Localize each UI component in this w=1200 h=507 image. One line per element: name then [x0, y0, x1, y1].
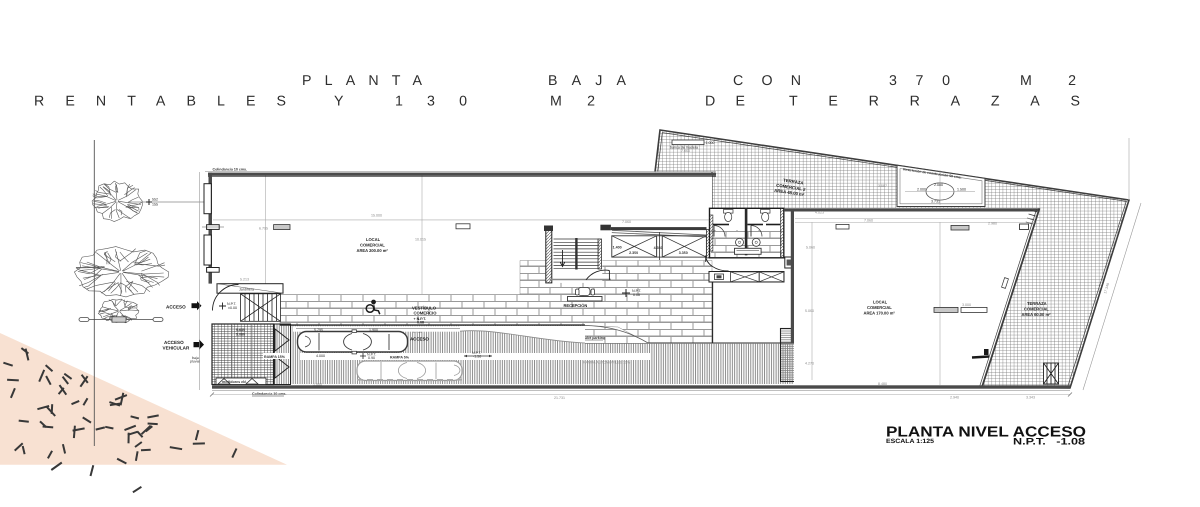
svg-text:5.213: 5.213: [240, 278, 249, 282]
svg-text:AREA 170.00 m²: AREA 170.00 m²: [864, 310, 896, 315]
svg-text:ACCESO: ACCESO: [166, 305, 186, 310]
svg-text:1.000: 1.000: [706, 141, 715, 145]
svg-text:-1.50: -1.50: [473, 354, 481, 358]
svg-text:AREA 200.00 m²: AREA 200.00 m²: [357, 248, 389, 253]
svg-text:0.08: 0.08: [417, 320, 424, 324]
svg-text:4.350: 4.350: [654, 246, 663, 250]
svg-text:ACCESO: ACCESO: [410, 337, 429, 342]
svg-text:7.060: 7.060: [622, 220, 631, 224]
svg-text:VEHICULAR: VEHICULAR: [163, 345, 190, 350]
svg-text:3.587: 3.587: [878, 184, 887, 188]
svg-text:pluvial: pluvial: [190, 360, 200, 364]
svg-text:4.023: 4.023: [815, 210, 824, 214]
svg-text:LOCAL: LOCAL: [873, 300, 888, 305]
svg-text:3.343: 3.343: [1026, 395, 1035, 399]
svg-text:medidores elé.: medidores elé.: [222, 380, 247, 384]
svg-text:552: 552: [152, 198, 158, 202]
svg-text:3.731: 3.731: [931, 200, 940, 204]
svg-text:COMERCIAL: COMERCIAL: [867, 305, 892, 310]
svg-text:LOCAL: LOCAL: [366, 237, 381, 242]
svg-text:AREA 60.00 m²: AREA 60.00 m²: [1022, 312, 1052, 317]
svg-text:RECEPCIÓN: RECEPCIÓN: [564, 303, 588, 308]
svg-text:RAMPA 15%: RAMPA 15%: [264, 355, 286, 359]
svg-text:15.000: 15.000: [371, 214, 382, 218]
svg-text:10.015: 10.015: [415, 238, 426, 242]
svg-text:±0.00: ±0.00: [228, 306, 237, 310]
svg-text:COMERCIAL: COMERCIAL: [360, 242, 385, 247]
svg-text:5.060: 5.060: [805, 309, 814, 313]
svg-text:4.000: 4.000: [316, 354, 325, 358]
svg-text:3.000: 3.000: [962, 303, 971, 307]
svg-text:21.731: 21.731: [554, 396, 565, 400]
svg-text:2.980: 2.980: [988, 222, 997, 226]
svg-text:Colindancia 10 cms.: Colindancia 10 cms.: [252, 392, 287, 396]
svg-text:ACCESO: ACCESO: [164, 340, 184, 345]
svg-text:N.P.T. -1.08: N.P.T. -1.08: [1013, 437, 1085, 448]
svg-text:2.350: 2.350: [629, 251, 638, 255]
svg-text:RAMPA AUTOMOVILES 15%: RAMPA AUTOMOVILES 15%: [583, 361, 631, 365]
svg-text:155: 155: [152, 203, 158, 207]
svg-text:CON: CON: [733, 73, 801, 89]
svg-text:Y: Y: [334, 93, 344, 109]
svg-text:6.795: 6.795: [259, 227, 268, 231]
svg-text:TERRAZA: TERRAZA: [1027, 301, 1047, 306]
svg-text:ESCALA 1:125: ESCALA 1:125: [886, 438, 935, 445]
svg-text:Jardinera: Jardinera: [239, 288, 254, 292]
svg-text:Colindancia 10 cms.: Colindancia 10 cms.: [213, 168, 248, 172]
svg-text:0.08: 0.08: [633, 293, 640, 297]
svg-text:5.635: 5.635: [236, 328, 245, 332]
svg-text:COMERCIO: COMERCIO: [414, 311, 438, 316]
svg-text:COMERCIAL: COMERCIAL: [1024, 306, 1049, 311]
svg-text:2.000: 2.000: [934, 183, 943, 187]
svg-text:5.060: 5.060: [236, 333, 245, 337]
svg-text:RAMPA 5%: RAMPA 5%: [390, 356, 410, 360]
svg-text:2.940: 2.940: [950, 395, 959, 399]
svg-text:RENTABLES: RENTABLES: [34, 93, 286, 109]
svg-text:1.400: 1.400: [613, 245, 622, 249]
svg-text:5.060: 5.060: [806, 246, 815, 250]
svg-text:0.90: 0.90: [368, 356, 375, 360]
svg-text:7.060: 7.060: [864, 219, 873, 223]
svg-text:1.500: 1.500: [957, 187, 966, 191]
svg-text:valet parking: valet parking: [583, 336, 605, 340]
svg-text:3.350: 3.350: [679, 251, 688, 255]
svg-text:7.060: 7.060: [681, 149, 690, 153]
svg-text:4.270: 4.270: [805, 362, 814, 366]
svg-text:2.000: 2.000: [917, 187, 926, 191]
